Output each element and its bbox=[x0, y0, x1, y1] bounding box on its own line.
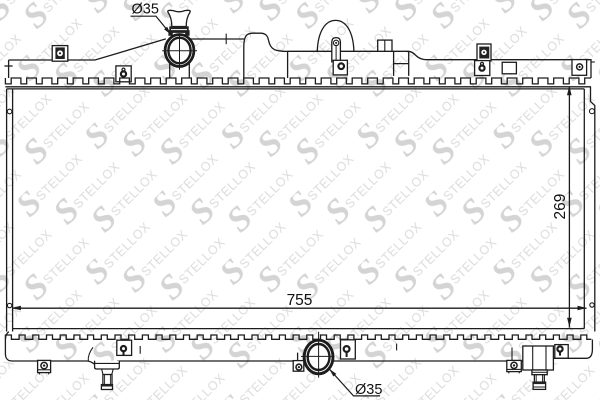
svg-text:269: 269 bbox=[552, 194, 569, 220]
svg-text:755: 755 bbox=[287, 292, 313, 309]
svg-text:Ø35: Ø35 bbox=[132, 2, 159, 18]
